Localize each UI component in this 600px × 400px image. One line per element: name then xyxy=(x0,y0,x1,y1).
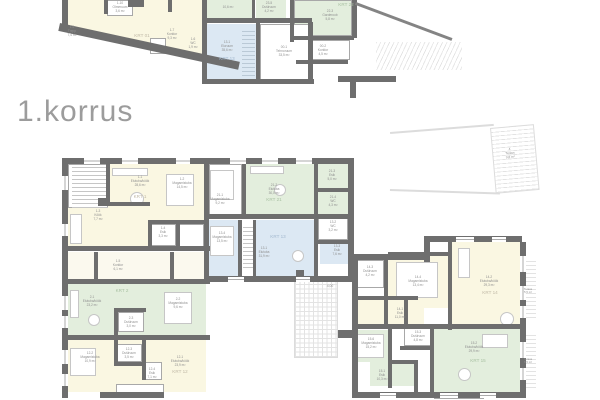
apartment-label: KRT 14 xyxy=(482,290,497,295)
stair-hatch xyxy=(242,28,255,76)
wall-segment xyxy=(430,236,522,242)
wall-segment xyxy=(104,0,108,14)
wall-segment xyxy=(414,360,418,392)
apartment-label: KRT 2 xyxy=(116,288,129,293)
apartment-label: KRT 1 xyxy=(134,194,147,199)
stair-hatch xyxy=(376,42,462,70)
wall-segment xyxy=(168,0,172,12)
wall-segment xyxy=(352,296,418,300)
window xyxy=(456,237,474,242)
wall-segment xyxy=(308,22,313,84)
furniture xyxy=(458,248,470,278)
room-label: 21-3 Esik 5,0 m² xyxy=(327,170,336,181)
wall-segment xyxy=(176,224,180,248)
wall-segment xyxy=(170,252,174,280)
wall-segment xyxy=(62,246,210,251)
furniture xyxy=(482,334,508,348)
window xyxy=(492,237,506,242)
room-label: Terass 8,5 m² xyxy=(524,358,532,365)
wall-segment xyxy=(296,60,348,64)
wall-segment xyxy=(253,220,256,277)
room-label: 22-3 Garderoob 5,8 m² xyxy=(322,10,337,21)
furniture xyxy=(70,290,79,318)
window xyxy=(122,158,138,164)
wall-segment xyxy=(350,82,356,98)
window xyxy=(296,158,312,164)
room-label: 23-5 Duširuum 4,2 m² xyxy=(262,2,276,13)
room-label: 13-1 Eluruum 35,6 m² xyxy=(221,41,233,52)
window xyxy=(520,368,526,380)
window xyxy=(176,158,190,164)
room-label: 1-2 Magamistuba 14,5 m² xyxy=(172,178,191,189)
room-label: 21-2 Elutuba 30,0 m² xyxy=(269,184,280,195)
wall-segment xyxy=(204,18,312,23)
room-label: 1-4 Esik 3,3 m² xyxy=(158,227,167,238)
room xyxy=(68,252,206,280)
room-label: 15-2 Elutuba/köök 29,9 m² xyxy=(465,342,483,353)
wall-segment xyxy=(114,308,118,336)
room-label: 2-1 Elutuba/köök 23,2 m² xyxy=(83,296,101,307)
furniture xyxy=(70,214,82,244)
room-label: 12-3 Duširuum 3,5 m² xyxy=(122,348,136,359)
apartment-label: KRT 15 xyxy=(470,358,485,363)
wall-segment xyxy=(204,79,314,84)
wall-segment xyxy=(256,20,260,84)
wall-segment xyxy=(338,76,396,82)
room-label: 21-4 WC 4,3 m² xyxy=(328,196,337,207)
wall-segment xyxy=(238,220,242,276)
wall-segment xyxy=(352,324,526,329)
window xyxy=(84,158,100,164)
room-label: Terass 5,5 m² xyxy=(524,288,532,295)
room-label: 1-3 Köök 7,7 m² xyxy=(93,210,102,221)
room-label: 15-3 Duširuum 4,8 m² xyxy=(411,331,425,342)
window xyxy=(62,224,68,236)
wall-segment xyxy=(62,279,210,284)
wall-segment xyxy=(388,328,392,388)
dimension-label: 4,00 xyxy=(327,284,334,288)
window xyxy=(520,256,526,272)
apartment-label: KRT 13 xyxy=(219,56,234,61)
apartment-label: KRT 22 xyxy=(338,2,353,7)
wall-segment xyxy=(294,36,354,40)
wall-segment xyxy=(204,158,209,222)
apartment-label: KRT 01 xyxy=(134,33,149,38)
room-label: 1-5 Koridor 6,1 m² xyxy=(113,260,123,271)
window xyxy=(62,374,68,386)
window xyxy=(62,176,68,190)
window xyxy=(62,350,68,364)
furniture xyxy=(458,368,471,381)
window xyxy=(62,316,68,328)
room-label: 4 Terass 9,8 m² xyxy=(505,148,515,160)
furniture xyxy=(250,166,284,174)
wall-segment xyxy=(355,2,453,41)
room-label: 1-7 Koridor 9,3 m² xyxy=(167,29,177,40)
room xyxy=(178,224,204,248)
wall-segment xyxy=(114,362,144,366)
wall-segment xyxy=(100,392,164,398)
room-label: 21-1 Magamistuba 9,2 m² xyxy=(210,194,229,205)
room-label: 13-2 WC 3,2 m² xyxy=(328,221,337,232)
wall-segment xyxy=(98,198,106,206)
room-label: 2-3 Duširuum 3,0 m² xyxy=(124,317,138,328)
room-label: 12-2 Magamistuba 10,9 m² xyxy=(80,352,99,363)
room-label: 13-4 Magamistuba 13,5 m² xyxy=(212,232,231,243)
window xyxy=(262,158,278,164)
apartment-label: KRT 13 xyxy=(270,234,285,239)
room-label: 12-4 Esik 7,1 m² xyxy=(147,368,156,379)
wall-segment xyxy=(148,224,152,246)
wall-segment xyxy=(108,202,150,206)
wall-segment xyxy=(128,0,144,7)
room-label: 1-10 Olmeruum 3,6 m² xyxy=(113,2,128,13)
window xyxy=(228,277,244,282)
apartment-label: KRT 12 xyxy=(172,369,187,374)
room-label: 14-4 Magamistuba 13,4 m² xyxy=(408,276,427,287)
terrace-edge xyxy=(390,189,500,194)
terrace-edge xyxy=(390,124,494,134)
wall-segment xyxy=(242,164,246,214)
room-label: 00-2 Koridor 4,5 m² xyxy=(318,45,328,56)
terrace-hatch xyxy=(490,124,540,194)
wall-segment xyxy=(142,340,146,380)
wall-segment xyxy=(106,158,110,206)
room-label: 1-5 Trepp 7,4 m² xyxy=(67,26,76,37)
window xyxy=(520,342,526,358)
room-label: 15-6 Magamistuba 15,2 m² xyxy=(361,338,380,349)
wall-segment xyxy=(384,256,388,328)
window xyxy=(480,393,496,398)
wall-segment xyxy=(94,252,98,280)
stair-hatch xyxy=(294,278,338,358)
wall-segment xyxy=(202,0,207,84)
wall-segment xyxy=(62,335,210,340)
window xyxy=(230,158,246,164)
wall-segment xyxy=(430,328,434,392)
window xyxy=(62,296,68,310)
wall-segment xyxy=(114,308,146,312)
wall-segment xyxy=(208,214,354,219)
room-label: 12-1 Elutuba/köök 23,9 m² xyxy=(171,356,189,367)
room-label: 10,6 m² xyxy=(223,6,234,10)
wall-segment xyxy=(400,346,434,350)
room-label: 14-1 Esik 11,0 m² xyxy=(395,308,406,319)
furniture xyxy=(292,250,304,262)
wall-segment xyxy=(316,188,350,192)
window xyxy=(296,277,310,282)
wall-segment xyxy=(252,0,255,20)
apartment-label: KRT 21 xyxy=(266,197,281,202)
floor-title: 1.korrus xyxy=(17,95,133,129)
room-label: 13-3 Esik 7,6 m² xyxy=(332,245,341,256)
wall-segment xyxy=(314,164,318,276)
window xyxy=(440,393,458,398)
wall-segment xyxy=(204,220,209,280)
room-label: 14-2 Elutuba/köök 29,3 m² xyxy=(480,276,498,287)
room-label: 15-1 Esik 10,3 m² xyxy=(377,370,388,381)
wall-segment xyxy=(338,330,358,338)
furniture xyxy=(88,314,100,326)
room-label: 14-3 Duširuum 4,2 m² xyxy=(363,266,377,277)
room-label: 1-1 Elutuba/köök 28,6 m² xyxy=(131,176,149,187)
window xyxy=(380,393,396,398)
room-label: 1-6 WC 1,9 m² xyxy=(188,38,197,49)
window xyxy=(520,306,526,318)
room-label: 13-1 Elutuba 31,9 m² xyxy=(259,247,270,258)
room-label: 00-1 Tehnoruum 33,5 m² xyxy=(276,46,292,57)
wall-segment xyxy=(352,392,526,398)
floor-plan-page: 1-10 Olmeruum 3,6 m²KRT 011-7 Koridor 9,… xyxy=(0,0,600,400)
wall-segment xyxy=(388,252,450,256)
room-label: 2-2 Magamistuba 9,6 m² xyxy=(168,298,187,309)
